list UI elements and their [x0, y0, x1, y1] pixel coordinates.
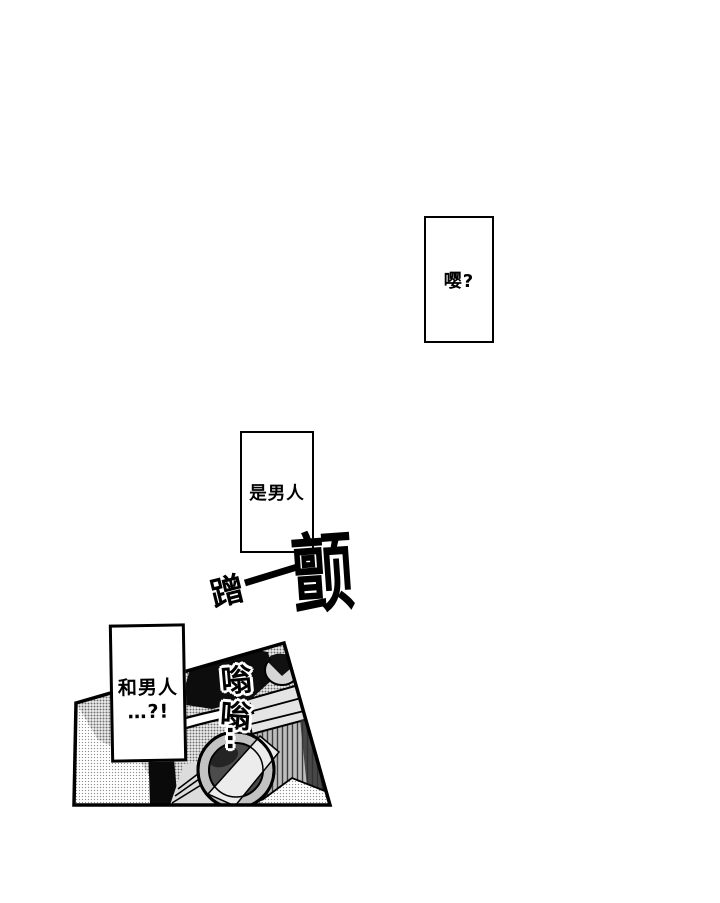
sfx-whir-ellipsis: …	[224, 726, 248, 750]
speech-bubble-bottom: 和男人 …?!	[109, 623, 187, 762]
manga-page: 嘤? 是男人 和男人 …?! 蹭 一 颤 嗡 嗡 …	[0, 0, 720, 903]
manga-panel-artwork	[0, 0, 720, 903]
panel-interior	[60, 635, 345, 810]
speech-bubble-bottom-line1: 和男人	[118, 677, 178, 702]
sfx-whir-1: 嗡	[220, 665, 254, 699]
sfx-shudder-chan: 颤	[289, 530, 357, 620]
speech-bubble-bottom-line2: …?!	[127, 701, 169, 725]
